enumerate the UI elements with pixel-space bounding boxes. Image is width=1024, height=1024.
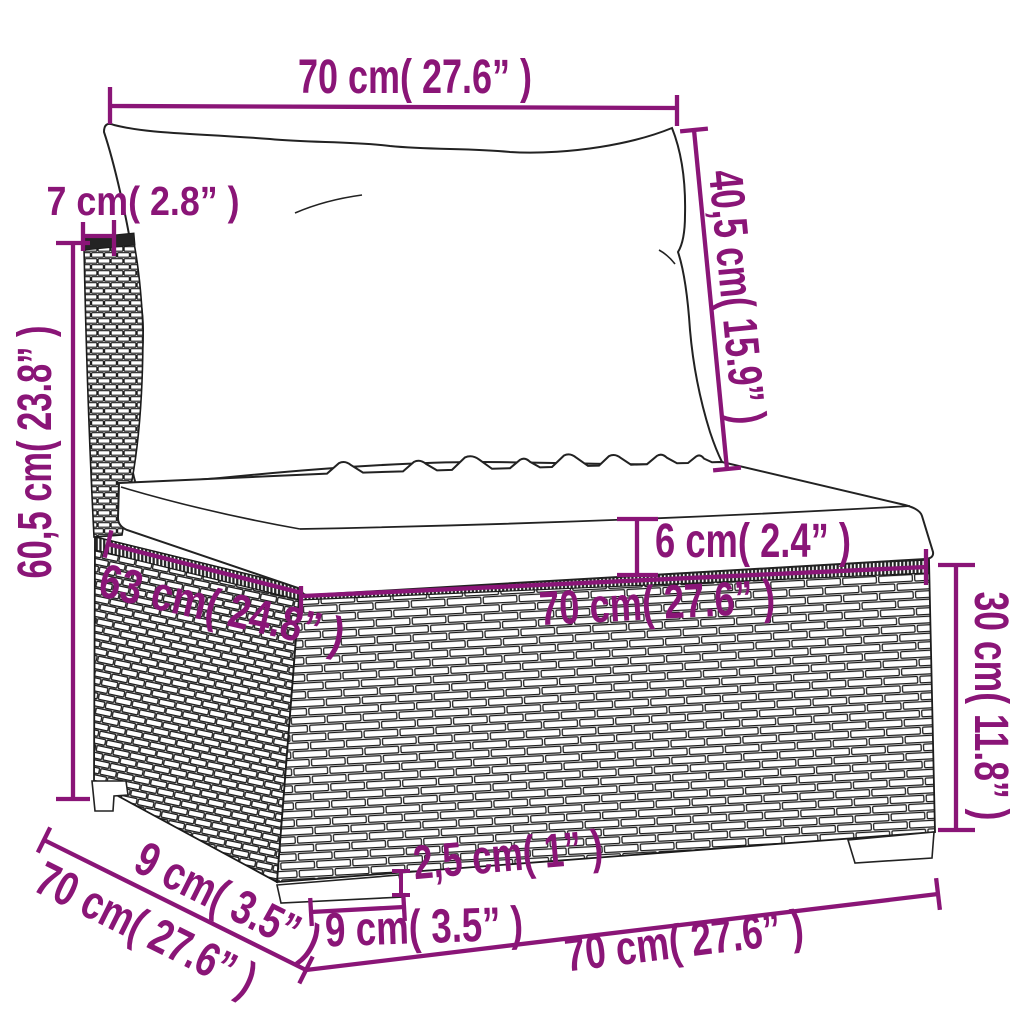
svg-text:6 cm( 2.4” ): 6 cm( 2.4” ) — [655, 515, 851, 568]
svg-text:60,5 cm( 23.8” ): 60,5 cm( 23.8” ) — [9, 326, 62, 579]
svg-text:7 cm( 2.8” ): 7 cm( 2.8” ) — [47, 178, 240, 224]
svg-text:30 cm( 11.8” ): 30 cm( 11.8” ) — [964, 592, 1017, 821]
svg-text:70 cm( 27.6” ): 70 cm( 27.6” ) — [298, 51, 532, 104]
svg-text:9 cm( 3.5” ): 9 cm( 3.5” ) — [324, 898, 524, 958]
